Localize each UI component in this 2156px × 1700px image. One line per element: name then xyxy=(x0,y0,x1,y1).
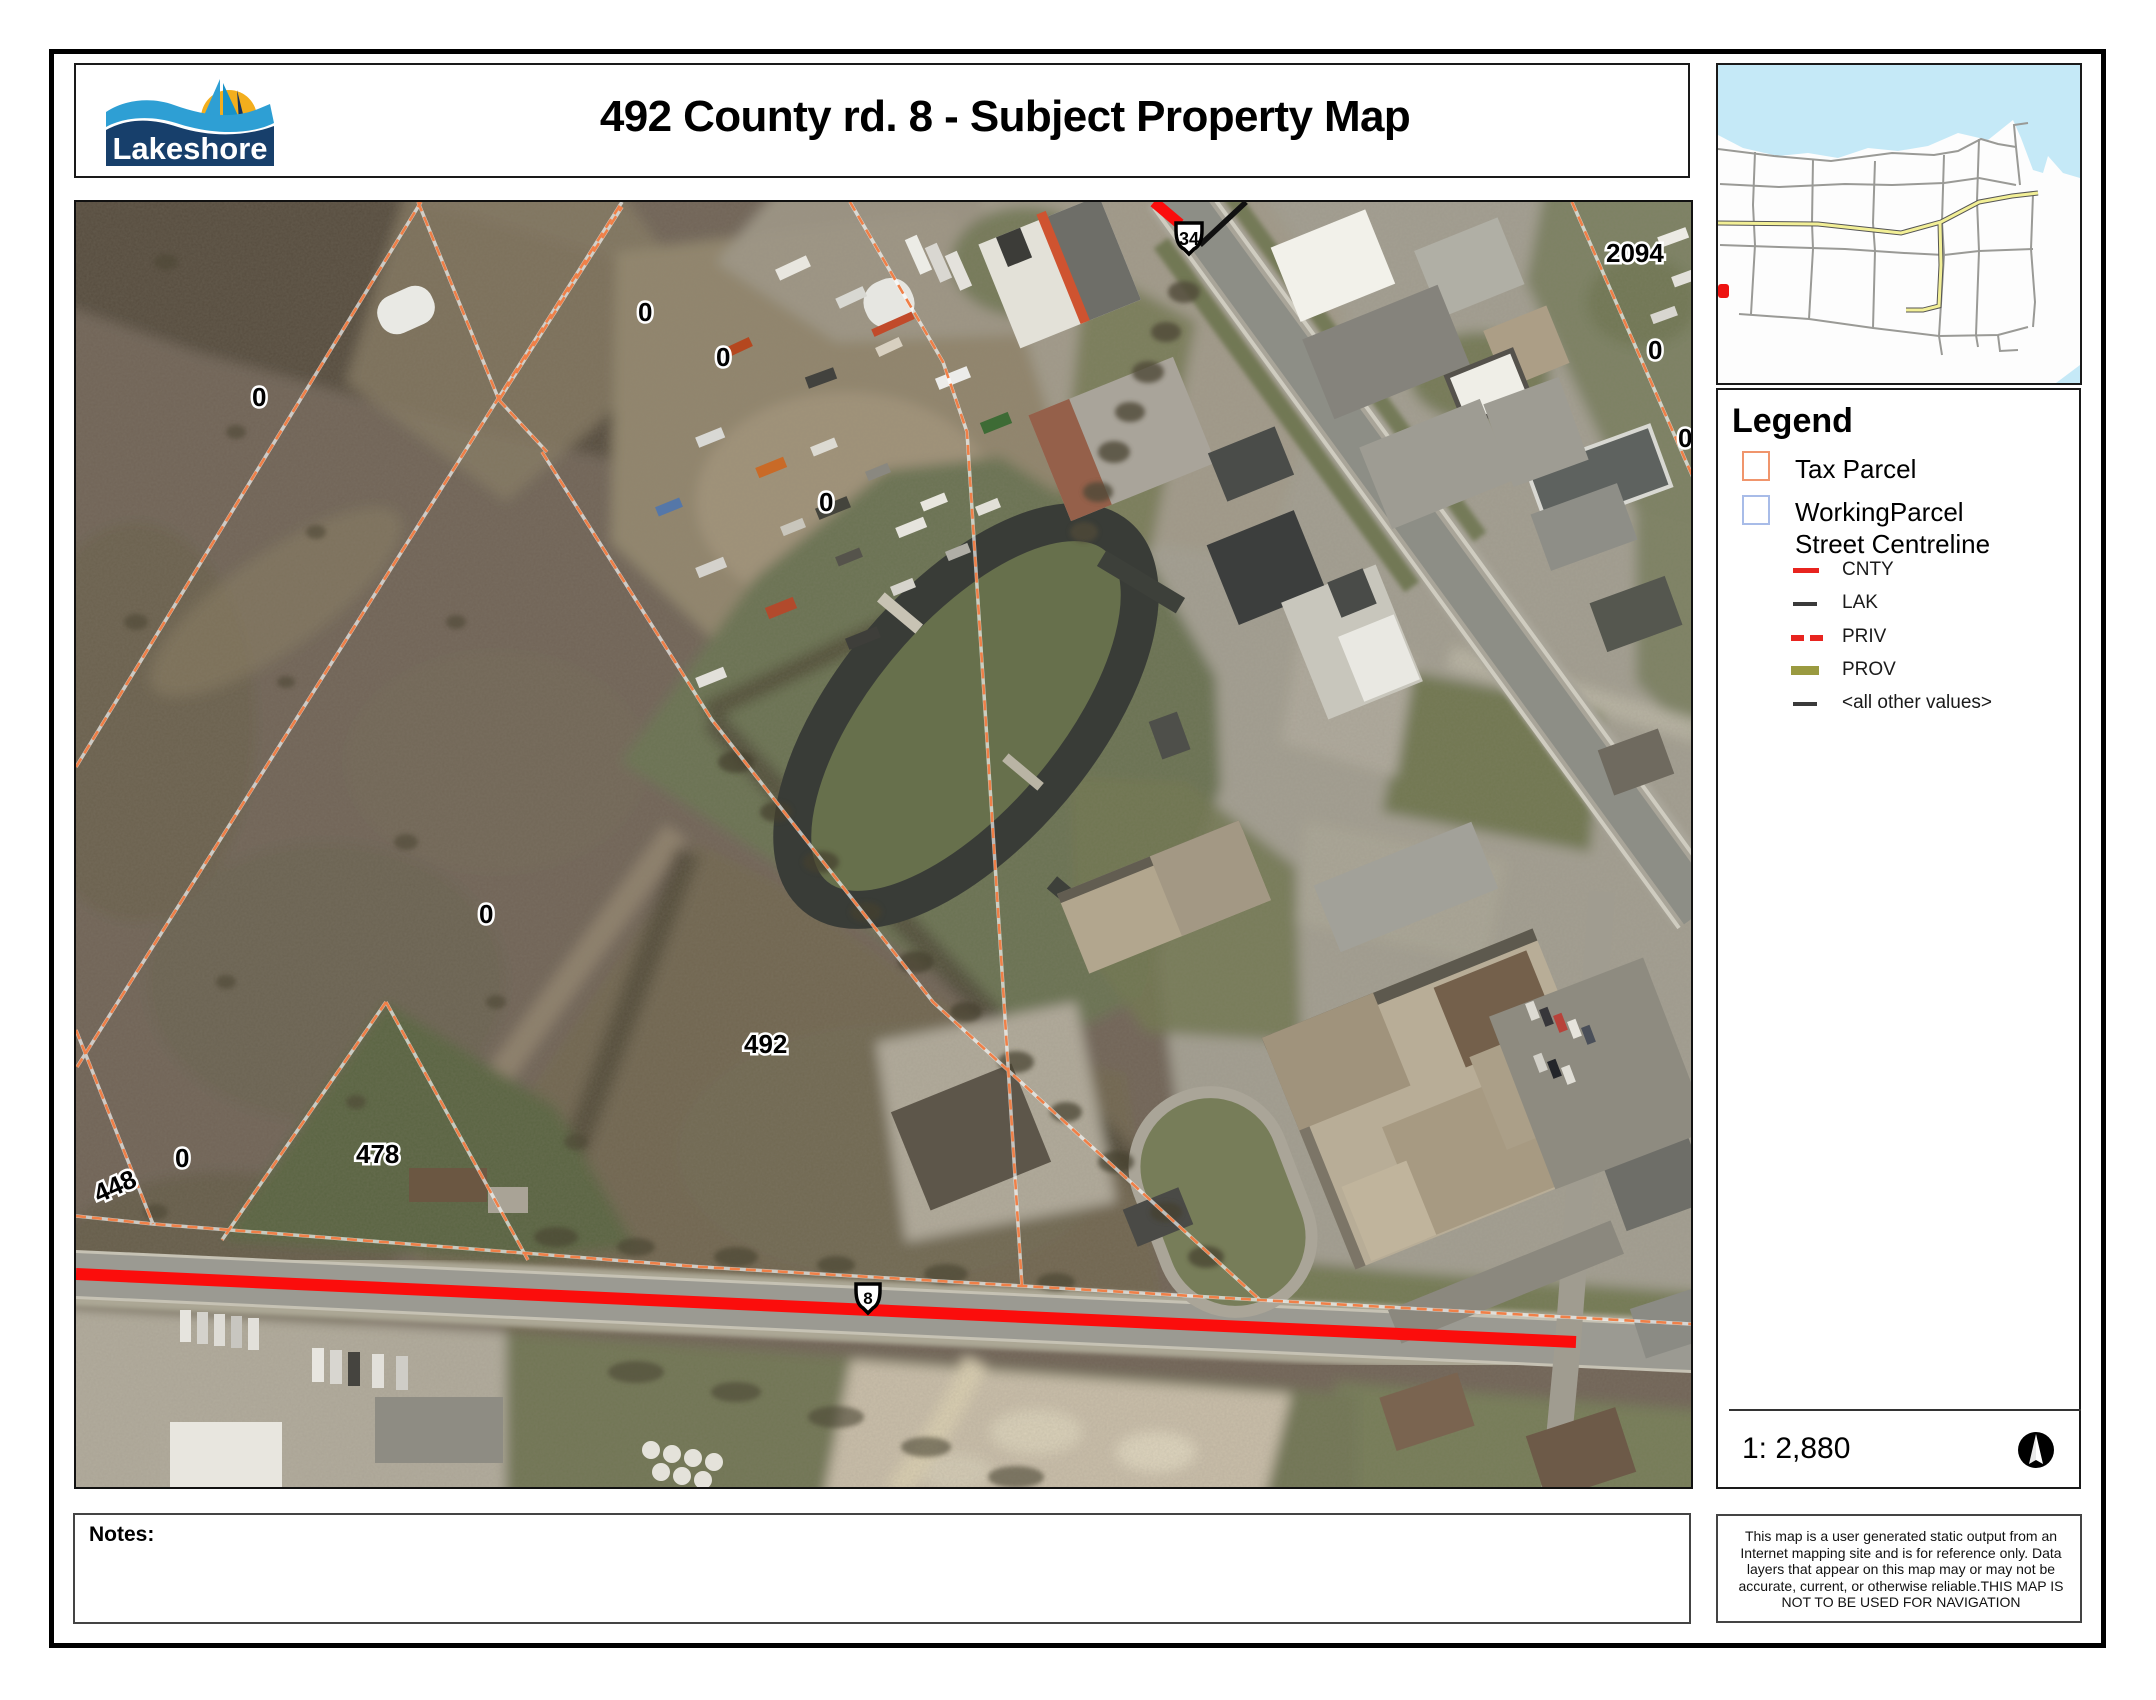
svg-text:492: 492 xyxy=(744,1029,787,1059)
svg-text:8: 8 xyxy=(863,1289,872,1308)
svg-text:0: 0 xyxy=(638,297,652,327)
svg-text:0: 0 xyxy=(479,899,493,929)
svg-text:0: 0 xyxy=(1678,423,1691,453)
svg-text:0: 0 xyxy=(252,382,266,412)
svg-text:Lakeshore: Lakeshore xyxy=(112,131,267,166)
svg-text:0: 0 xyxy=(175,1143,189,1173)
svg-text:2094: 2094 xyxy=(1606,238,1664,268)
svg-text:34: 34 xyxy=(1179,229,1199,249)
svg-text:0: 0 xyxy=(716,342,730,372)
svg-text:478: 478 xyxy=(356,1139,399,1169)
svg-text:0: 0 xyxy=(819,487,833,517)
svg-text:0: 0 xyxy=(1648,335,1662,365)
